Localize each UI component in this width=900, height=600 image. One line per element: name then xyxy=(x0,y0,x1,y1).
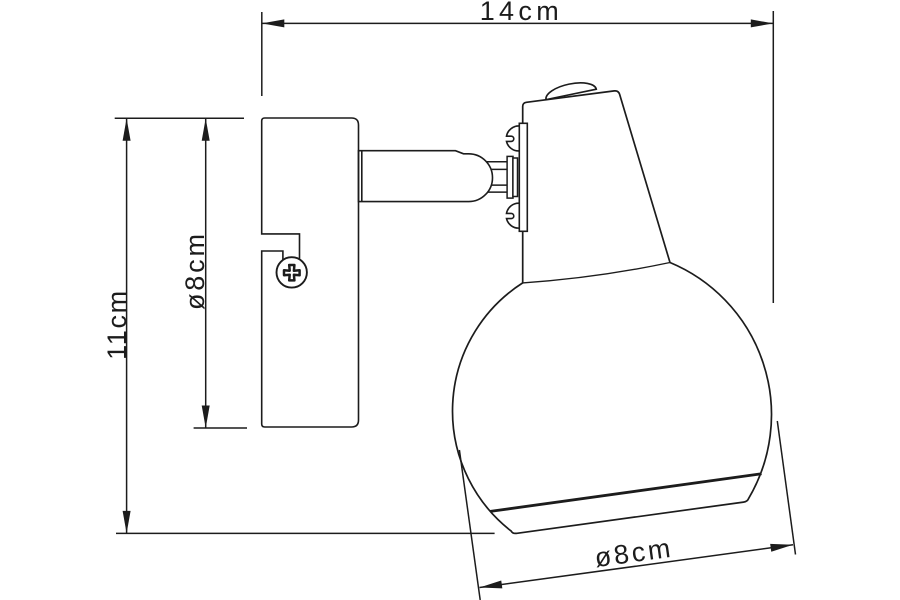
svg-text:11cm: 11cm xyxy=(102,291,132,360)
svg-text:14cm: 14cm xyxy=(480,0,559,26)
svg-text:ø8cm: ø8cm xyxy=(180,234,210,310)
